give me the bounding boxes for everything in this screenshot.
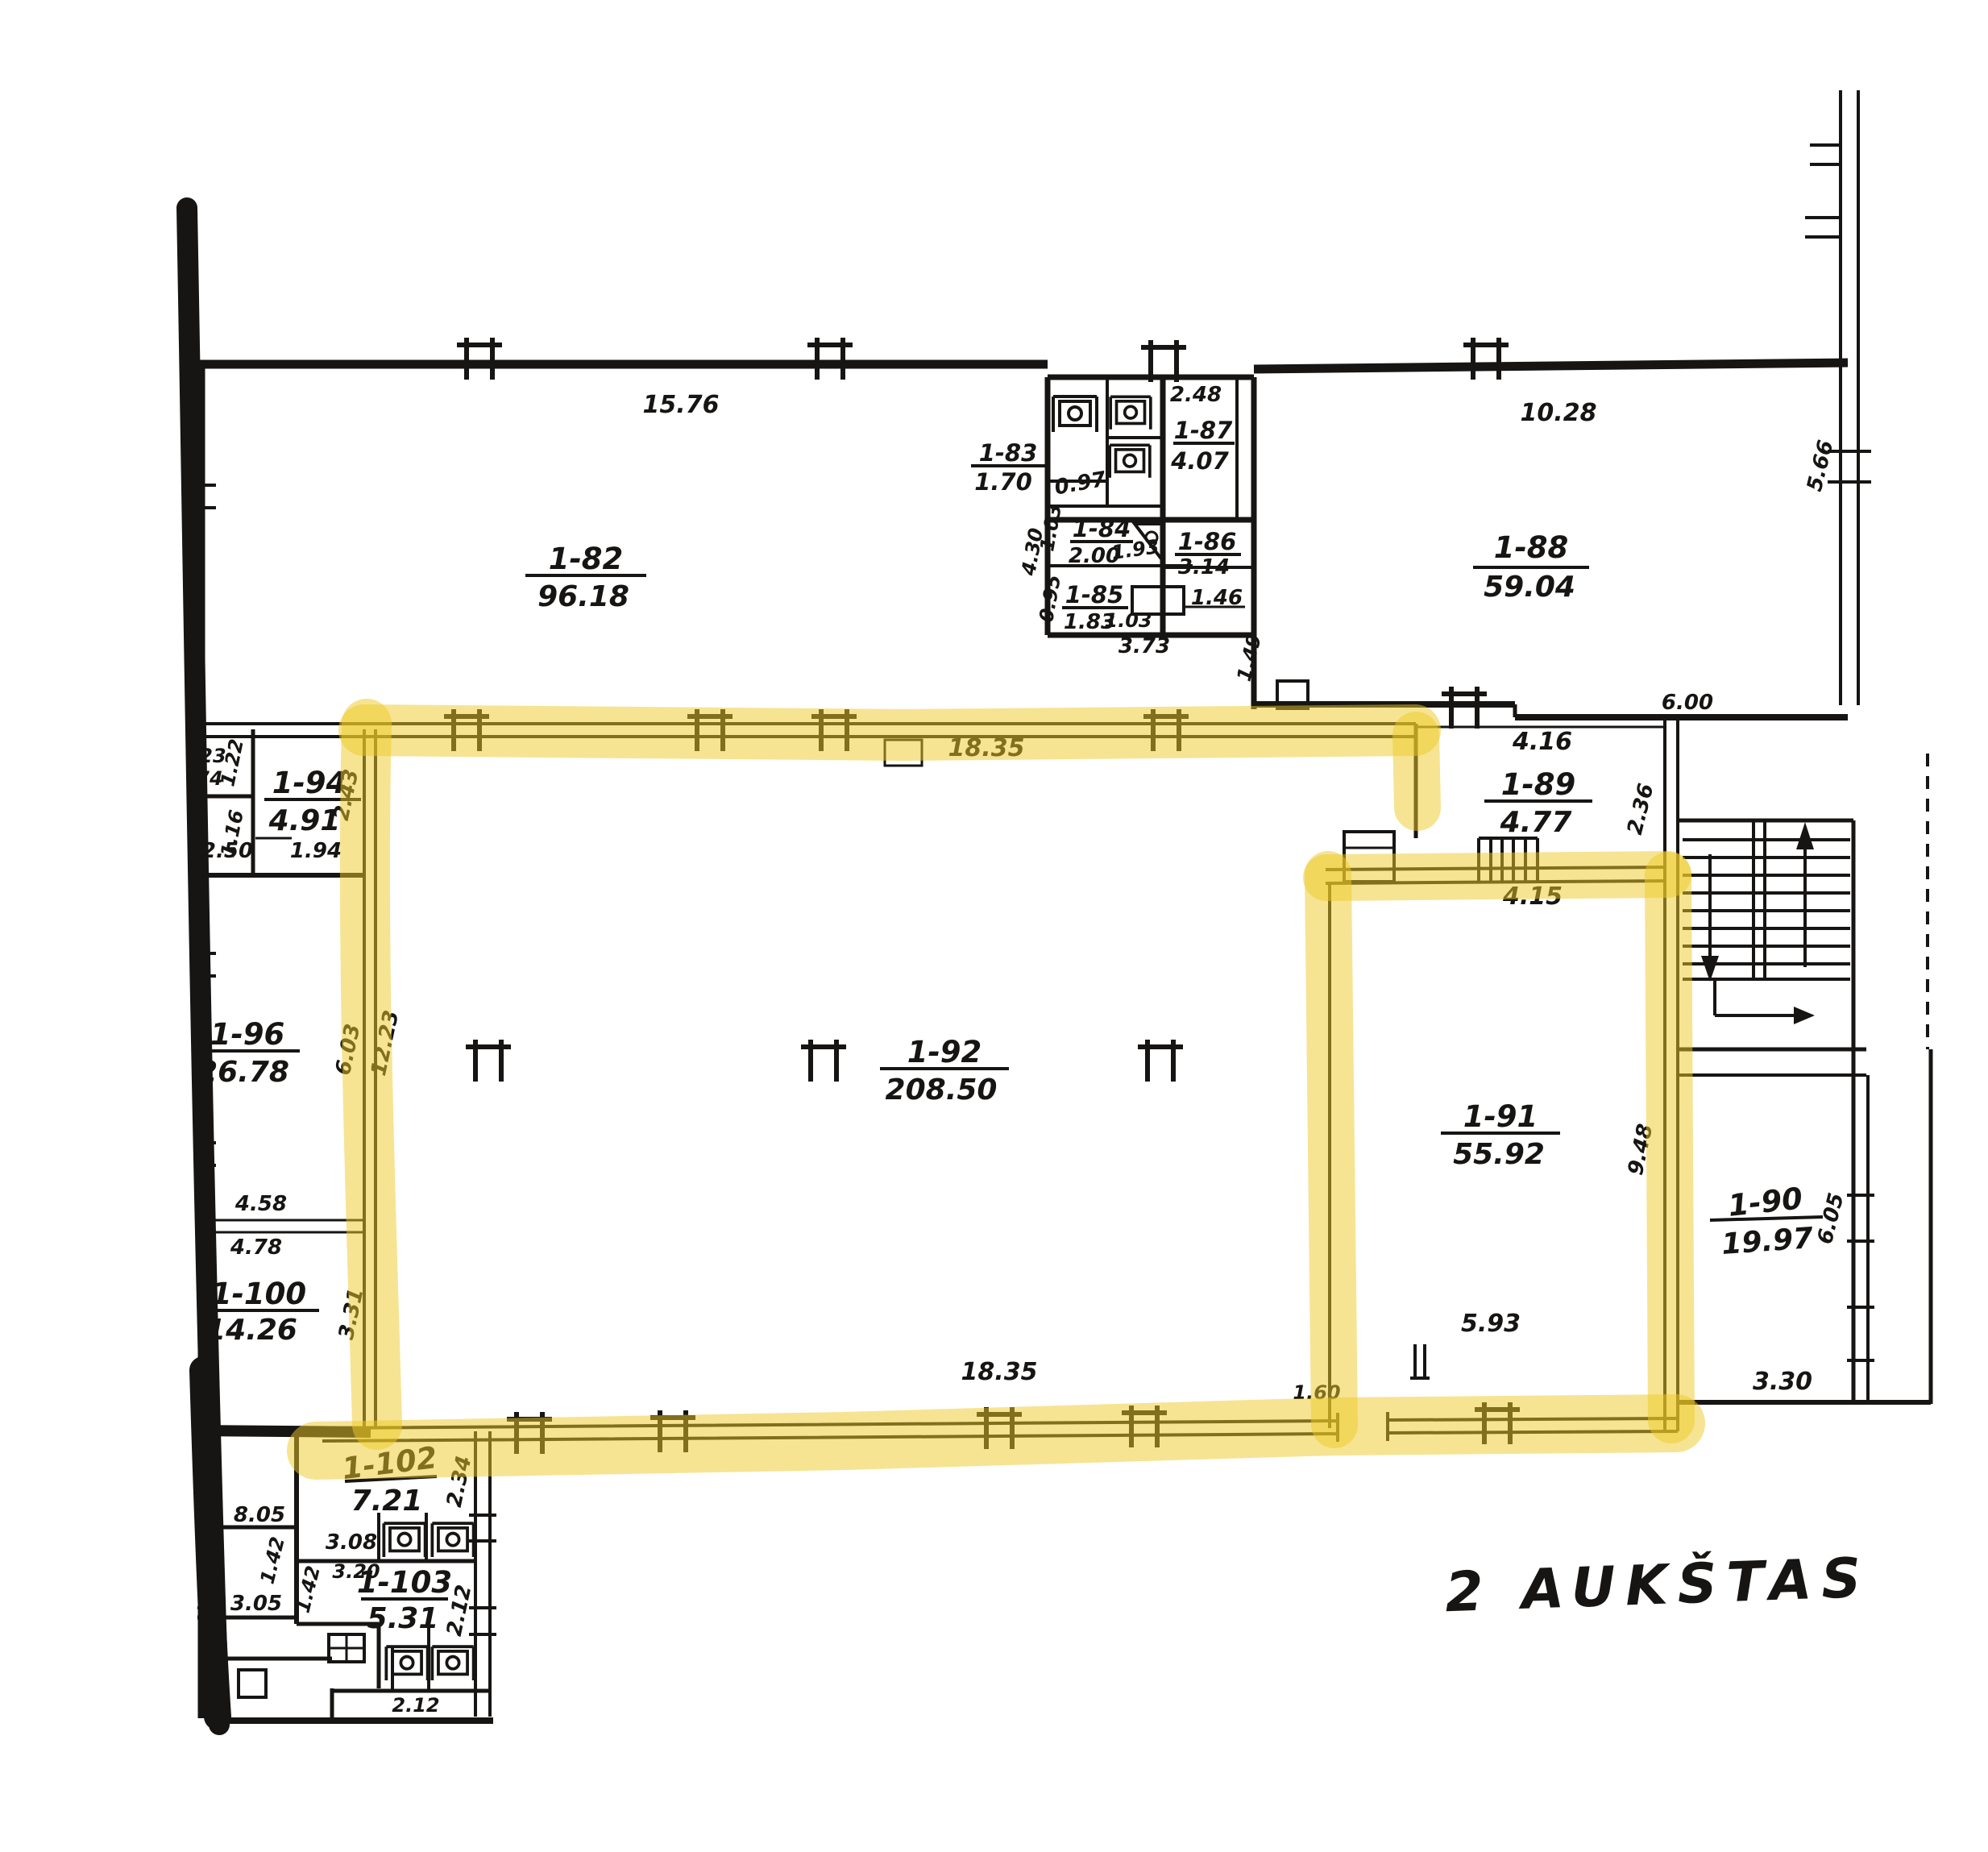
room-1-92-area: 208.50 bbox=[886, 1073, 998, 1107]
scanned-floor-plan-page: 1-82 96.18 1-88 59.04 1-92 208.50 1-91 5… bbox=[0, 0, 1988, 1852]
room-1-102-area: 7.21 bbox=[351, 1485, 423, 1518]
room-1-103-area: 5.31 bbox=[367, 1602, 439, 1635]
dim-18-35-bottom: 18.35 bbox=[961, 1358, 1038, 1386]
room-1-86-number: 1-86 bbox=[1178, 528, 1237, 555]
dim-4-78: 4.78 bbox=[230, 1235, 282, 1260]
room-1-90-area: 19.97 bbox=[1720, 1222, 1814, 1261]
dim-3-05: 3.05 bbox=[230, 1592, 282, 1616]
dim-3-30: 3.30 bbox=[1753, 1368, 1812, 1396]
room-1-82-number: 1-82 bbox=[549, 542, 624, 576]
dim-3-08: 3.08 bbox=[326, 1530, 377, 1555]
highlight-room91-left-wall bbox=[1328, 874, 1334, 1425]
room-1-87-area: 4.07 bbox=[1170, 447, 1229, 475]
room-1-91-area: 55.92 bbox=[1453, 1138, 1545, 1171]
dim-1-03: 1.03 bbox=[1104, 609, 1152, 632]
room-1-83-number: 1-83 bbox=[979, 439, 1038, 467]
dim-1-94: 1.94 bbox=[290, 839, 342, 863]
dim-15-76: 15.76 bbox=[643, 391, 720, 419]
dim-4-58: 4.58 bbox=[234, 1192, 287, 1216]
room-1-96-area: 26.78 bbox=[197, 1056, 289, 1089]
room-1-100-area: 14.26 bbox=[205, 1314, 297, 1347]
dim-1-46: 1.46 bbox=[1191, 586, 1243, 610]
highlight-top-wall bbox=[364, 730, 1415, 735]
room-1-88-number: 1-88 bbox=[1494, 530, 1569, 565]
highlight-top-stub bbox=[1416, 735, 1417, 808]
room-1-91-number: 1-91 bbox=[1463, 1099, 1538, 1134]
room-1-94-area: 4.91 bbox=[268, 804, 341, 837]
floor-plan: 1-82 96.18 1-88 59.04 1-92 208.50 1-91 5… bbox=[0, 0, 1988, 1852]
dim-2-48: 2.48 bbox=[1170, 383, 1222, 407]
dim-8-05: 8.05 bbox=[234, 1503, 285, 1527]
room-1-100-number: 1-100 bbox=[211, 1277, 306, 1311]
highlight-mid-wall bbox=[1326, 874, 1668, 878]
dim-5-93: 5.93 bbox=[1461, 1310, 1521, 1338]
highlight-left-wall bbox=[365, 724, 377, 1425]
room-1-89-number: 1-89 bbox=[1501, 767, 1576, 802]
dim-3-73: 3.73 bbox=[1119, 634, 1170, 658]
room-1-83-area: 1.70 bbox=[974, 468, 1032, 496]
dim-4-16: 4.16 bbox=[1512, 728, 1572, 756]
room-1-89-area: 4.77 bbox=[1500, 806, 1572, 839]
dim-fragment-74: 74 bbox=[196, 767, 222, 790]
dim-fragment-23: 23 bbox=[199, 745, 226, 767]
room-1-84-number: 1-84 bbox=[1073, 515, 1131, 542]
room-1-85-number: 1-85 bbox=[1065, 581, 1124, 608]
dim-2-50: 2.50 bbox=[201, 839, 253, 863]
room-1-96-number: 1-96 bbox=[210, 1017, 285, 1052]
highlight-bottom-wall bbox=[316, 1423, 1676, 1451]
highlight-room91-right-wall bbox=[1668, 875, 1671, 1420]
room-1-88-area: 59.04 bbox=[1484, 571, 1575, 604]
room-1-82-area: 96.18 bbox=[537, 580, 629, 613]
room-1-92-number: 1-92 bbox=[907, 1035, 982, 1069]
room-1-86-area: 3.14 bbox=[1178, 555, 1230, 579]
room-1-87-number: 1-87 bbox=[1174, 417, 1233, 444]
dim-3-20: 3.20 bbox=[332, 1560, 380, 1583]
dim-6-00: 6.00 bbox=[1662, 691, 1713, 715]
dim-2-12-bottom: 2.12 bbox=[392, 1694, 439, 1717]
dim-10-28: 10.28 bbox=[1521, 399, 1597, 427]
